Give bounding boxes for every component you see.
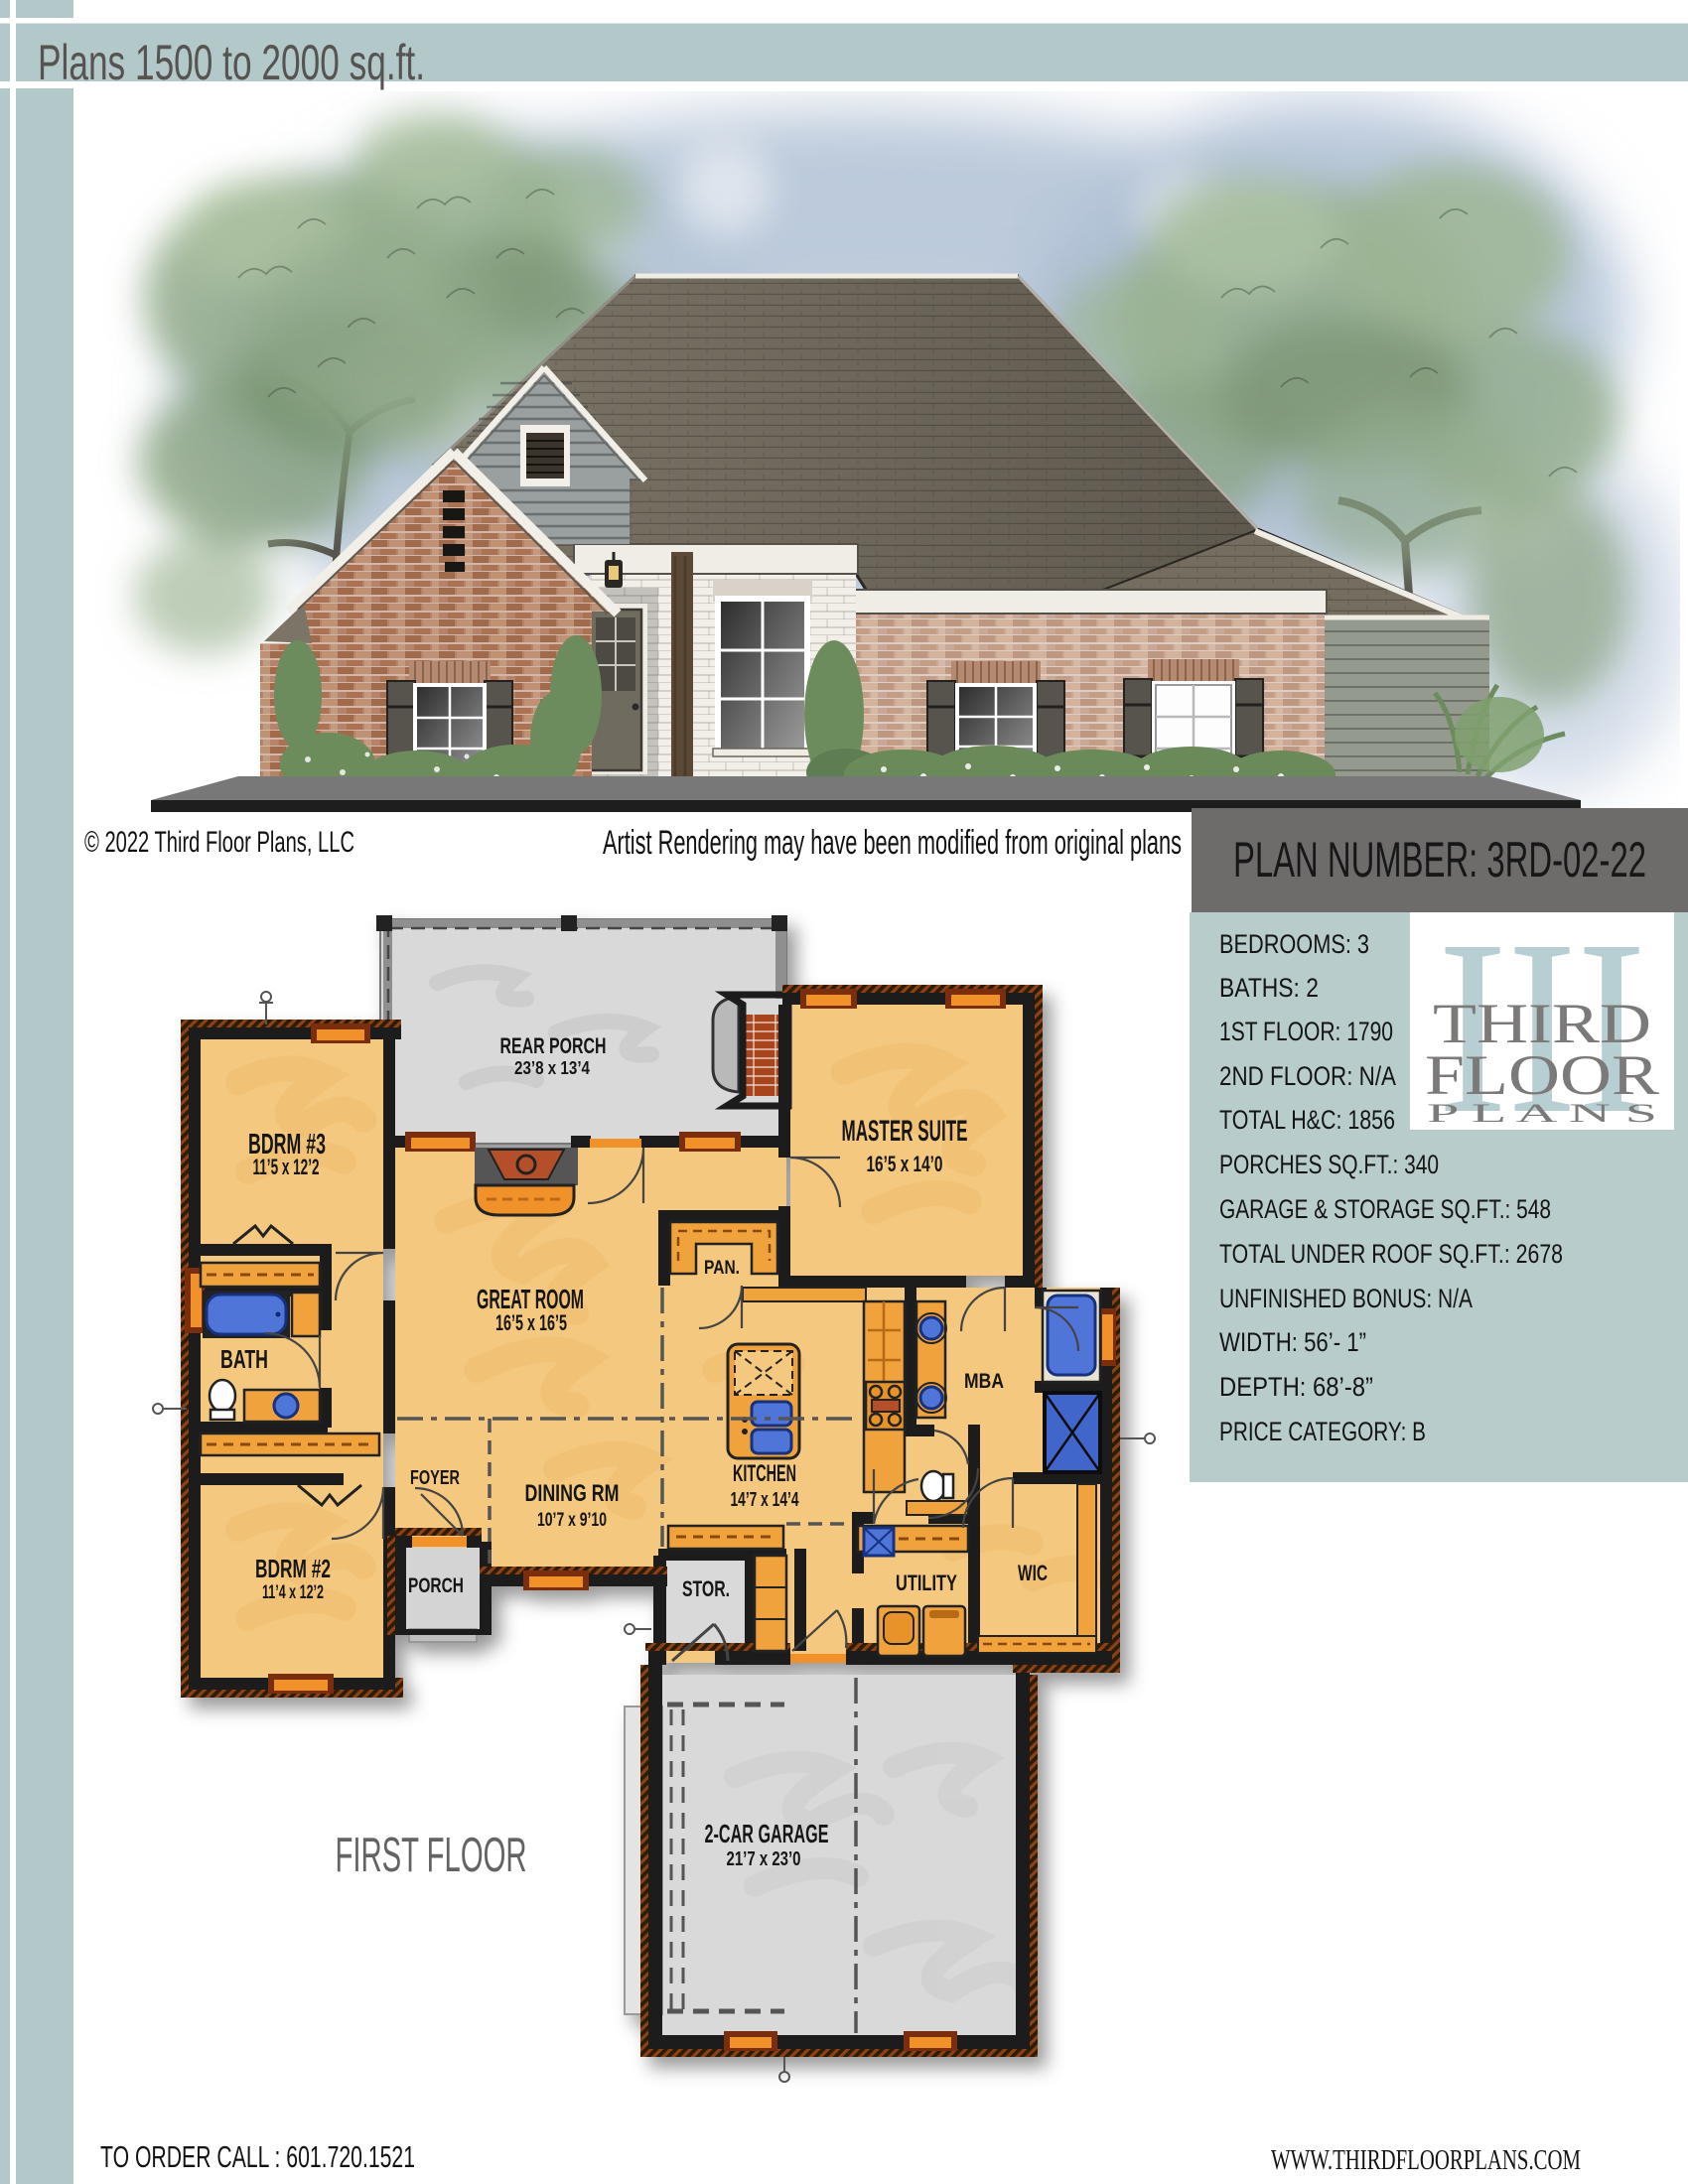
svg-text:DEPTH: 68’-8”: DEPTH: 68’-8” [1219, 1372, 1373, 1402]
svg-text:1ST FLOOR: 1790: 1ST FLOOR: 1790 [1219, 1017, 1393, 1046]
svg-text:PORCH: PORCH [408, 1574, 464, 1597]
svg-text:TOTAL H&C: 1856: TOTAL H&C: 1856 [1219, 1105, 1395, 1135]
svg-text:16’5 x 14’0: 16’5 x 14’0 [867, 1152, 943, 1176]
svg-text:2-CAR GARAGE: 2-CAR GARAGE [705, 1819, 829, 1848]
svg-text:Plans 1500 to 2000 sq.ft.: Plans 1500 to 2000 sq.ft. [38, 35, 425, 90]
svg-text:BDRM #2: BDRM #2 [255, 1554, 331, 1583]
svg-text:STOR.: STOR. [682, 1576, 730, 1601]
svg-text:BATHS: 2: BATHS: 2 [1219, 973, 1319, 1003]
svg-text:FLOOR: FLOOR [1425, 1044, 1659, 1107]
svg-text:PLAN NUMBER: 3RD-02-22: PLAN NUMBER: 3RD-02-22 [1233, 832, 1646, 887]
svg-text:2ND FLOOR: N/A: 2ND FLOOR: N/A [1219, 1061, 1396, 1091]
svg-text:PORCHES SQ.FT.: 340: PORCHES SQ.FT.: 340 [1219, 1150, 1439, 1179]
svg-text:BATH: BATH [220, 1344, 268, 1374]
svg-text:TO ORDER CALL : 601.720.1521: TO ORDER CALL : 601.720.1521 [100, 2139, 415, 2174]
svg-text:11’4 x 12’2: 11’4 x 12’2 [262, 1582, 324, 1603]
svg-text:23’8 x 13’4: 23’8 x 13’4 [514, 1058, 590, 1078]
svg-text:WIC: WIC [1018, 1561, 1048, 1585]
svg-text:DINING RM: DINING RM [525, 1480, 620, 1507]
svg-text:FOYER: FOYER [410, 1467, 460, 1489]
svg-text:UNFINISHED BONUS: N/A: UNFINISHED BONUS: N/A [1219, 1284, 1473, 1313]
svg-text:TOTAL UNDER ROOF SQ.FT.: 267: TOTAL UNDER ROOF SQ.FT.: 2678 [1219, 1239, 1563, 1269]
svg-text:PAN.: PAN. [704, 1258, 740, 1279]
svg-text:© 2022 Third Floor Plans, LLC: © 2022 Third Floor Plans, LLC [84, 826, 354, 859]
svg-text:14’7 x 14’4: 14’7 x 14’4 [731, 1489, 800, 1511]
svg-text:16’5 x 16’5: 16’5 x 16’5 [495, 1310, 567, 1335]
svg-text:10’7 x 9’10: 10’7 x 9’10 [537, 1510, 607, 1531]
svg-text:MASTER SUITE: MASTER SUITE [842, 1115, 968, 1148]
svg-text:11’5 x 12’2: 11’5 x 12’2 [253, 1155, 320, 1179]
svg-text:BEDROOMS: 3: BEDROOMS: 3 [1219, 929, 1369, 959]
svg-text:Artist Rendering may have been: Artist Rendering may have been modified … [603, 824, 1182, 862]
svg-text:MBA: MBA [964, 1370, 1004, 1393]
svg-text:WIDTH: 56’- 1”: WIDTH: 56’- 1” [1219, 1327, 1366, 1357]
svg-text:UTILITY: UTILITY [896, 1570, 957, 1595]
svg-text:P L A N S: P L A N S [1427, 1099, 1657, 1128]
svg-text:KITCHEN: KITCHEN [733, 1460, 796, 1487]
svg-text:GARAGE & STORAGE SQ.FT.: 548: GARAGE & STORAGE SQ.FT.: 548 [1219, 1194, 1551, 1224]
svg-text:PRICE CATEGORY: B: PRICE CATEGORY: B [1219, 1417, 1426, 1446]
svg-text:FIRST FLOOR: FIRST FLOOR [336, 1829, 527, 1882]
svg-text:WWW.THIRDFLOORPLANS.COM: WWW.THIRDFLOORPLANS.COM [1271, 2145, 1581, 2176]
svg-text:REAR PORCH: REAR PORCH [500, 1033, 607, 1058]
svg-text:21’7 x 23’0: 21’7 x 23’0 [727, 1848, 801, 1870]
